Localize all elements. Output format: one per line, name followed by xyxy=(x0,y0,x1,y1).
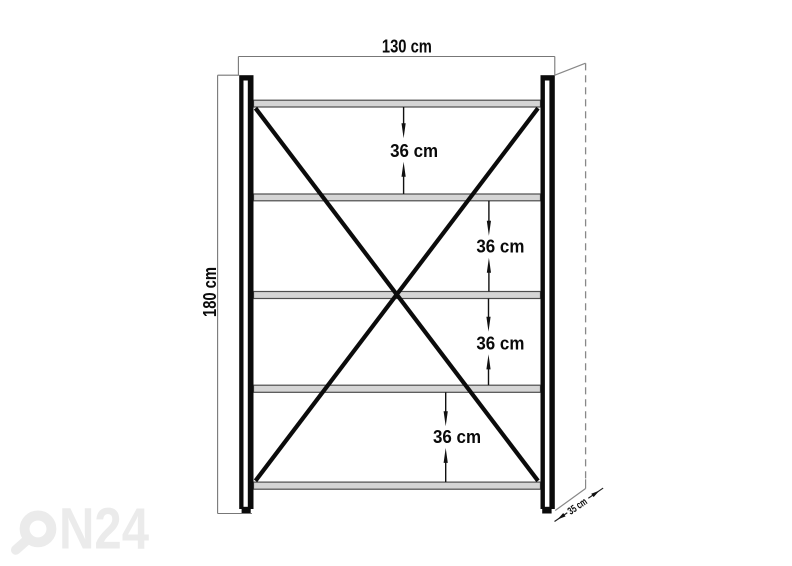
svg-text:36 cm: 36 cm xyxy=(433,427,481,447)
svg-text:180 cm: 180 cm xyxy=(200,267,220,317)
svg-text:130 cm: 130 cm xyxy=(382,37,432,57)
svg-text:36 cm: 36 cm xyxy=(476,237,524,257)
svg-text:36 cm: 36 cm xyxy=(390,141,438,161)
svg-text:36 cm: 36 cm xyxy=(476,333,524,353)
svg-text:N24: N24 xyxy=(59,497,149,562)
